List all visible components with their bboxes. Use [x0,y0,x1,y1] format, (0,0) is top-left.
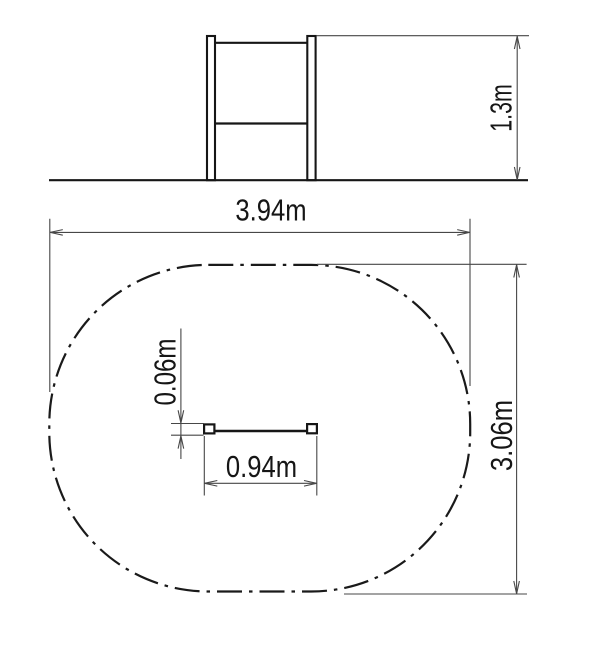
svg-text:1.3m: 1.3m [484,84,519,131]
svg-text:0.06m: 0.06m [148,339,182,406]
svg-text:3.06m: 3.06m [485,400,519,471]
svg-text:3.94m: 3.94m [235,193,306,227]
svg-text:0.94m: 0.94m [226,450,297,484]
